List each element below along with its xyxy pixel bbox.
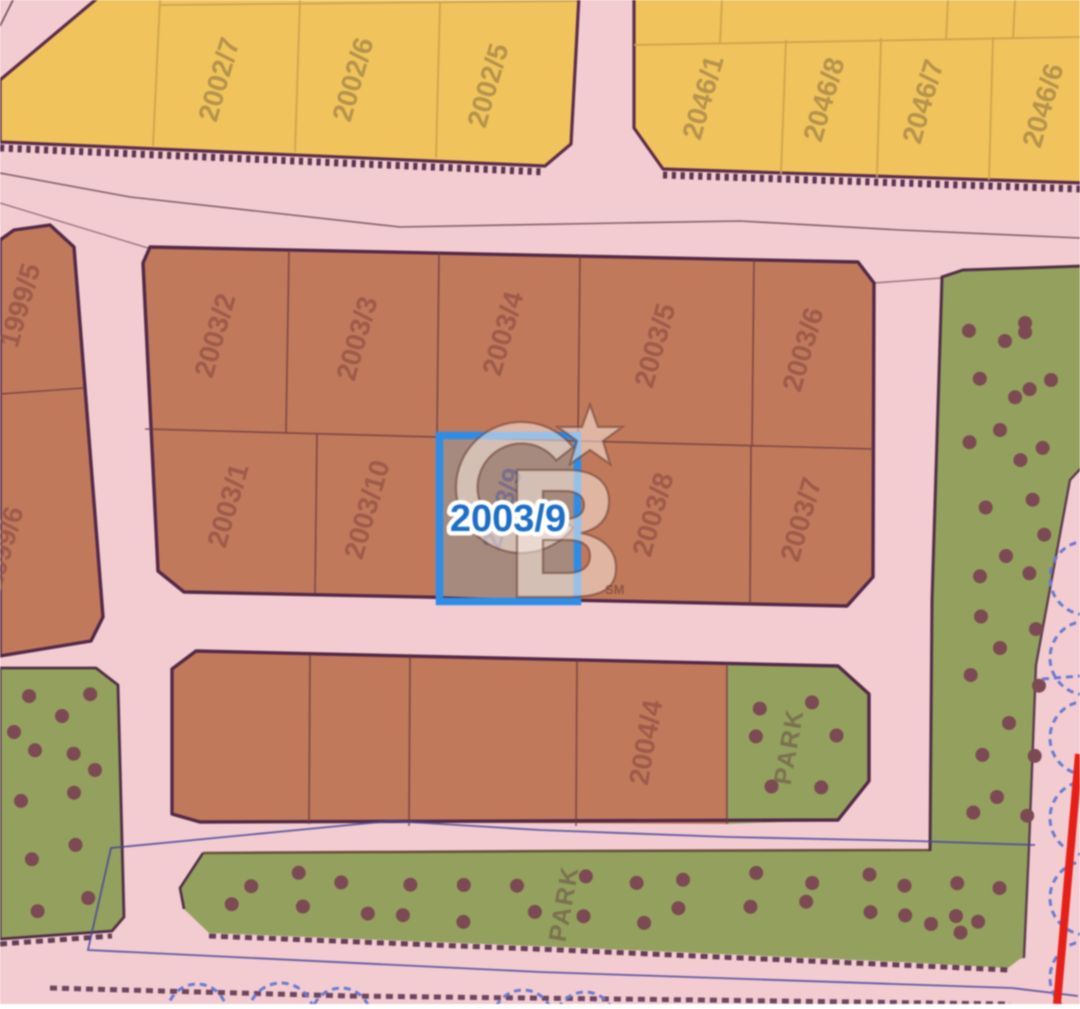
- svg-text:2003/9: 2003/9: [450, 498, 566, 540]
- svg-text:SM: SM: [605, 582, 625, 597]
